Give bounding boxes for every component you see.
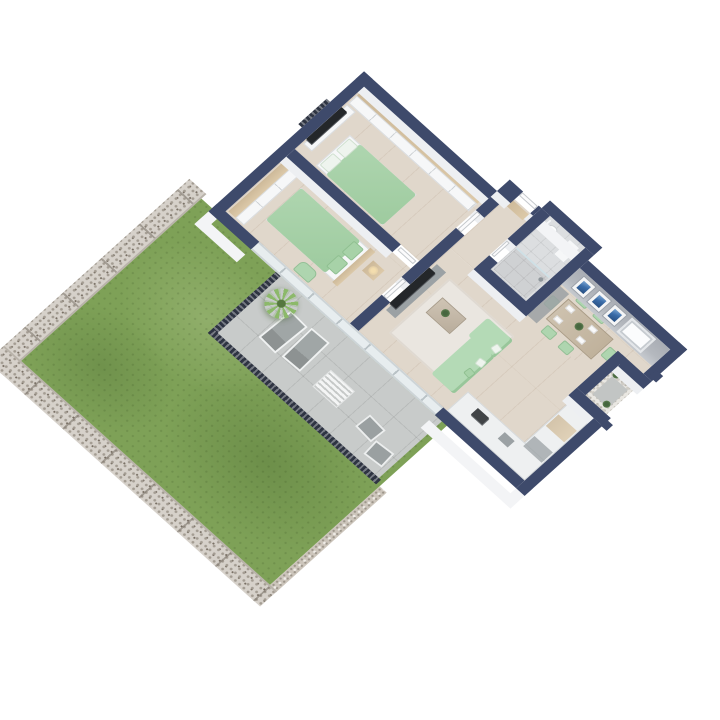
floor-plan-render bbox=[0, 0, 720, 720]
rotated-scene bbox=[21, 43, 693, 648]
